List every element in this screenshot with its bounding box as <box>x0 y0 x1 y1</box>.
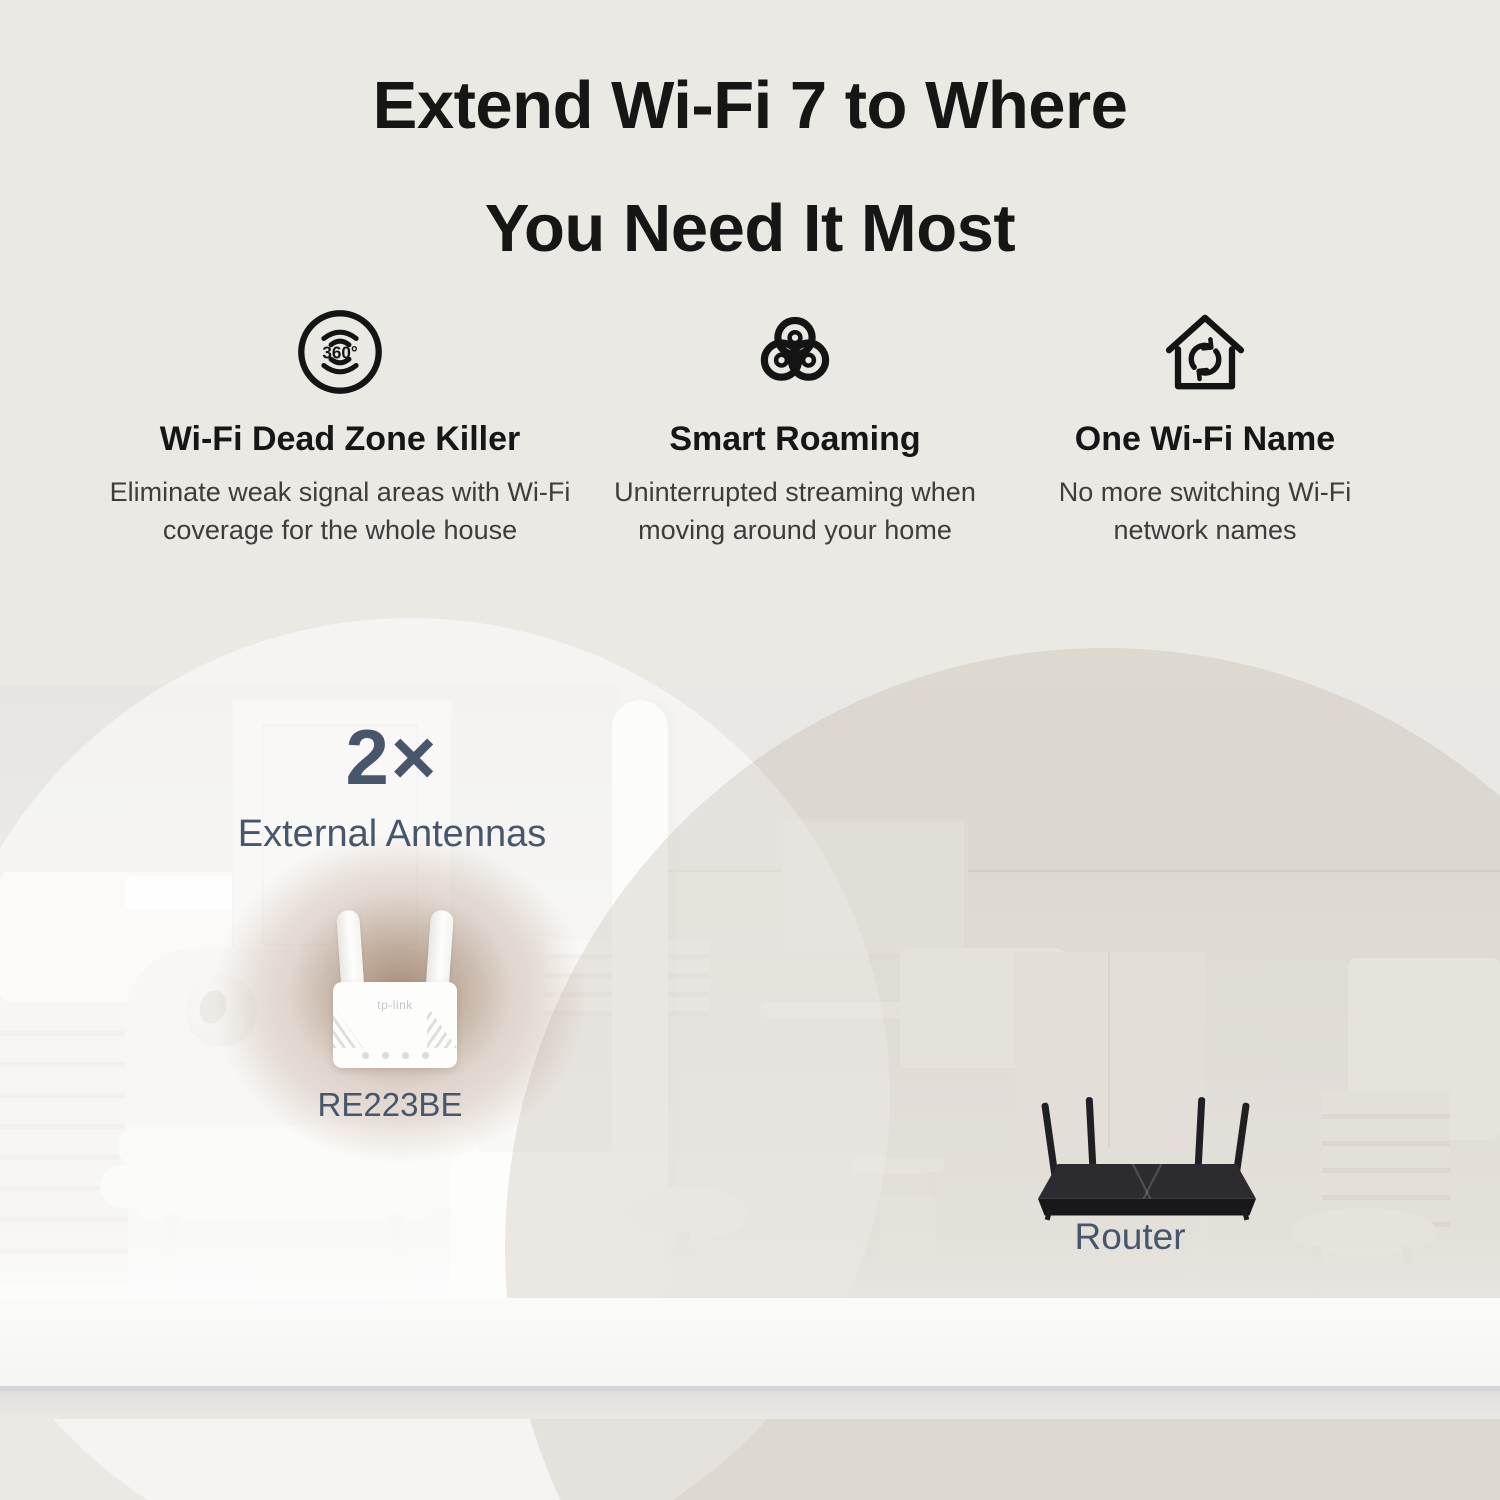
router-label: Router <box>1020 1216 1240 1258</box>
feature-heading: One Wi-Fi Name <box>1005 420 1405 459</box>
led-indicator <box>362 1052 369 1059</box>
antenna-callout: 2× External Antennas <box>142 712 642 856</box>
svg-text:360°: 360° <box>322 343 358 362</box>
led-indicator <box>402 1052 409 1059</box>
led-indicator <box>382 1052 389 1059</box>
feature-description: Uninterrupted streaming when moving arou… <box>575 473 1015 550</box>
feature-dead-zone-killer: 360° Wi-Fi Dead Zone Killer Eliminate we… <box>85 306 595 550</box>
range-extender-device: tp-link <box>330 908 460 1068</box>
title-line-1: Extend Wi-Fi 7 to Where <box>0 72 1500 139</box>
tp-link-logo: tp-link <box>333 998 457 1012</box>
feature-description: No more switching Wi-Fi network names <box>1030 473 1380 550</box>
extender-vent-left <box>333 1006 363 1048</box>
feature-heading: Smart Roaming <box>565 420 1025 459</box>
router-device <box>1038 1102 1256 1220</box>
antenna-count: 2× <box>142 712 642 803</box>
floor-platform <box>0 1298 1500 1386</box>
product-infographic: Extend Wi-Fi 7 to Where You Need It Most… <box>0 0 1500 1500</box>
feature-smart-roaming: Smart Roaming Uninterrupted streaming wh… <box>565 306 1025 550</box>
feature-one-wifi-name: One Wi-Fi Name No more switching Wi-Fi n… <box>1005 306 1405 550</box>
title-line-2: You Need It Most <box>0 195 1500 262</box>
floor-shadow <box>0 1391 1500 1419</box>
feature-heading: Wi-Fi Dead Zone Killer <box>85 420 595 459</box>
extender-led-row <box>333 1052 457 1059</box>
one-wifi-name-icon <box>1005 306 1405 398</box>
extender-body: tp-link <box>333 982 457 1068</box>
page-title: Extend Wi-Fi 7 to Where You Need It Most <box>0 72 1500 262</box>
smart-roaming-icon <box>565 306 1025 398</box>
router-body <box>1038 1164 1256 1220</box>
extender-model-label: RE223BE <box>255 1086 525 1124</box>
coverage-360-icon: 360° <box>85 306 595 398</box>
antenna-label: External Antennas <box>142 813 642 856</box>
led-indicator <box>422 1052 429 1059</box>
feature-description: Eliminate weak signal areas with Wi-Fi c… <box>88 473 593 550</box>
extender-vent-right <box>427 1006 457 1048</box>
